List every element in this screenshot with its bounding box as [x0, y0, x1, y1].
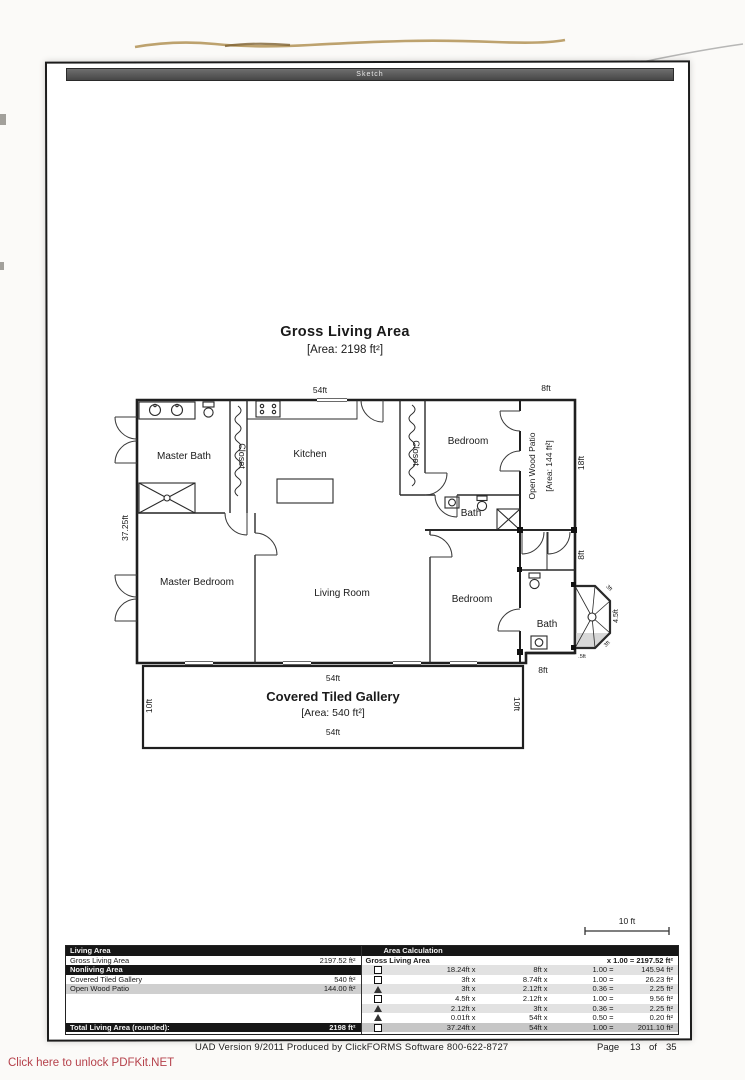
room-label-bedroom-top: Bedroom — [448, 436, 489, 447]
dim-shower-small: .5ft — [578, 654, 586, 660]
scanned-sketch-page: Sketch Gross Living Area [Area: 2198 ft²… — [0, 0, 745, 1080]
patio-row-value: 144.00 ft² — [266, 984, 361, 994]
triangle-icon — [374, 986, 382, 993]
sketch-header-bar: Sketch — [66, 68, 674, 81]
gallery-row-label: Covered Tiled Gallery — [66, 975, 266, 985]
square-icon — [374, 966, 382, 974]
calc-row: 18.24ft x 8ft x 1.00 = 145.94 ft² — [362, 965, 678, 975]
triangle-icon — [374, 1005, 382, 1012]
gallery-right-dim: 10ft — [512, 697, 522, 712]
calc-result: 0.20 ft² — [614, 1013, 678, 1023]
dim-bath-bottom: 8ft — [538, 665, 548, 675]
room-label-bath-bottom: Bath — [537, 619, 558, 630]
calc-factor: 0.36 = — [548, 1004, 614, 1014]
footer-page-total: 35 — [666, 1042, 677, 1053]
nonliving-area-header: Nonliving Area — [66, 965, 361, 975]
calc-dim1: 37.24ft x — [398, 1023, 476, 1033]
calc-result: 9.56 ft² — [614, 994, 678, 1004]
calc-row: 0.01ft x 54ft x 0.50 = 0.20 ft² — [362, 1013, 678, 1023]
dim-shower-top: 3ft — [604, 584, 613, 593]
footer-page-label: Page — [597, 1042, 619, 1053]
room-label-bedroom-bottom: Bedroom — [452, 594, 493, 605]
calc-dim2: 8ft x — [476, 965, 548, 975]
unlock-pdfkit-link[interactable]: Click here to unlock PDFKit.NET — [8, 1057, 174, 1069]
gallery-title: Covered Tiled Gallery — [266, 689, 400, 704]
dim-shower-right: 4.5ft — [613, 609, 620, 623]
gallery-bottom-dim: 54ft — [326, 727, 341, 737]
calc-dim2: 8.74ft x — [476, 975, 548, 985]
calc-dim1: 2.12ft x — [398, 1004, 476, 1014]
gallery-top-dim: 54ft — [326, 673, 341, 683]
footer-page-number: 13 — [630, 1042, 641, 1053]
room-label-patio: Open Wood Patio — [527, 432, 537, 499]
gallery-area: [Area: 540 ft²] — [301, 707, 365, 719]
calc-factor: 1.00 = — [548, 965, 614, 975]
patio-row-label: Open Wood Patio — [66, 984, 266, 994]
calc-dim1: 3ft x — [398, 975, 476, 985]
calc-gla-formula: x 1.00 = 2197.52 ft² — [519, 956, 678, 966]
floorplan-outer-walls — [137, 400, 575, 663]
room-label-master-bedroom: Master Bedroom — [160, 577, 234, 588]
blank-row — [66, 994, 361, 1004]
scale-label: 10 ft — [619, 916, 636, 926]
gla-value: 2197.52 ft² — [266, 956, 361, 966]
patio-area-label: [Area: 144 ft²] — [544, 440, 554, 492]
calc-factor: 0.50 = — [548, 1013, 614, 1023]
living-area-subtable: Living Area Gross Living Area 2197.52 ft… — [66, 946, 361, 1034]
calc-row: 3ft x 8.74ft x 1.00 = 26.23 ft² — [362, 975, 678, 985]
footer-text: UAD Version 9/2011 Produced by ClickFORM… — [195, 1042, 508, 1053]
room-label-closet1: Closet — [237, 443, 247, 469]
calc-result: 26.23 ft² — [614, 975, 678, 985]
square-icon — [374, 1024, 382, 1032]
octagon-shower-icon — [575, 586, 610, 648]
calc-dim2: 2.12ft x — [476, 994, 548, 1004]
square-icon — [374, 995, 382, 1003]
area-calculation-table: Living Area Gross Living Area 2197.52 ft… — [65, 945, 679, 1035]
room-label-bath-mid: Bath — [461, 508, 482, 519]
scan-edge-mark — [0, 114, 6, 125]
dim-shower-bottom: 3ft — [603, 640, 612, 649]
blank-row — [66, 1004, 361, 1014]
dim-left: 37.25ft — [120, 514, 130, 541]
dim-patio-right: 18ft — [576, 455, 586, 470]
square-icon — [374, 976, 382, 984]
living-area-header: Living Area — [66, 946, 361, 956]
plan-title: Gross Living Area — [235, 324, 455, 340]
calc-dim2: 54ft x — [476, 1013, 548, 1023]
calc-result: 2.25 ft² — [614, 1004, 678, 1014]
calc-factor: 1.00 = — [548, 994, 614, 1004]
calc-result: 145.94 ft² — [614, 965, 678, 975]
room-label-living-room: Living Room — [314, 588, 370, 599]
gallery-left-dim: 10ft — [144, 698, 154, 713]
calculation-subtable: Area Calculation Gross Living Area x 1.0… — [361, 946, 678, 1034]
blank-row — [66, 1013, 361, 1023]
footer-of-label: of — [649, 1042, 657, 1053]
calc-row: 37.24ft x 54ft x 1.00 = 2011.10 ft² — [362, 1023, 678, 1033]
scan-artifact-squiggle — [130, 32, 570, 58]
sketch-header-label: Sketch — [356, 71, 383, 78]
calc-dim2: 3ft x — [476, 1004, 548, 1014]
calc-result: 2011.10 ft² — [614, 1023, 678, 1033]
total-label: Total Living Area (rounded): — [66, 1023, 266, 1033]
calc-dim2: 54ft x — [476, 1023, 548, 1033]
total-value: 2198 ft² — [266, 1023, 361, 1033]
floorplan-svg: Master Bath Closet Kitchen Closet Bedroo… — [105, 383, 635, 763]
triangle-icon — [374, 1014, 382, 1021]
calc-factor: 0.36 = — [548, 984, 614, 994]
calc-dim2: 2.12ft x — [476, 984, 548, 994]
calc-factor: 1.00 = — [548, 975, 614, 985]
scan-edge-mark — [0, 262, 4, 270]
calc-row: 3ft x 2.12ft x 0.36 = 2.25 ft² — [362, 984, 678, 994]
room-label-closet2: Closet — [411, 440, 421, 466]
dim-right-mid: 8ft — [576, 550, 586, 560]
gla-label: Gross Living Area — [66, 956, 266, 966]
dim-top: 54ft — [313, 385, 328, 395]
gallery-row-value: 540 ft² — [266, 975, 361, 985]
calc-row: 2.12ft x 3ft x 0.36 = 2.25 ft² — [362, 1004, 678, 1014]
calc-gla-label: Gross Living Area — [362, 956, 520, 966]
calc-dim1: 0.01ft x — [398, 1013, 476, 1023]
calc-result: 2.25 ft² — [614, 984, 678, 994]
calc-dim1: 4.5ft x — [398, 994, 476, 1004]
calc-row: 4.5ft x 2.12ft x 1.00 = 9.56 ft² — [362, 994, 678, 1004]
calc-factor: 1.00 = — [548, 1023, 614, 1033]
scale-bar: 10 ft — [575, 908, 685, 942]
area-calculation-header: Area Calculation — [362, 946, 678, 956]
calc-dim1: 3ft x — [398, 984, 476, 994]
calc-dim1: 18.24ft x — [398, 965, 476, 975]
dim-patio-top: 8ft — [541, 383, 551, 393]
room-label-kitchen: Kitchen — [293, 449, 326, 460]
plan-area-subtitle: [Area: 2198 ft²] — [235, 344, 455, 356]
room-label-master-bath: Master Bath — [157, 451, 211, 462]
